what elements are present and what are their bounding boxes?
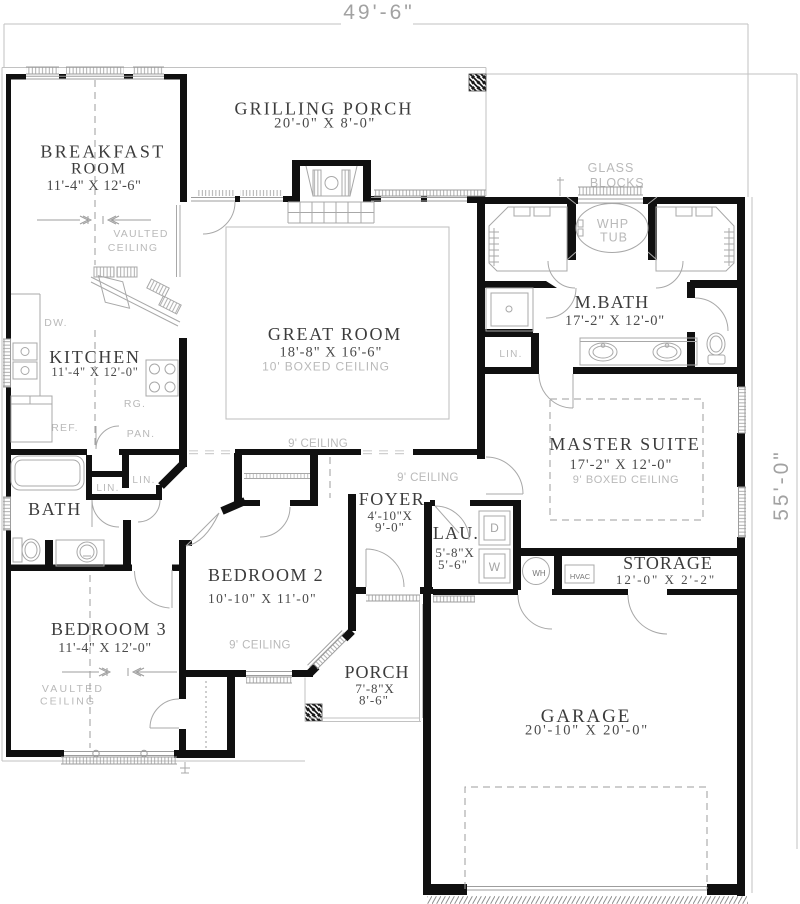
svg-text:49'-6": 49'-6" <box>343 1 415 24</box>
svg-text:TUB: TUB <box>600 231 628 245</box>
svg-text:LAU.: LAU. <box>433 523 479 543</box>
svg-text:55'-0": 55'-0" <box>770 449 793 521</box>
svg-text:9'-0": 9'-0" <box>375 520 405 535</box>
svg-text:ROOM: ROOM <box>71 161 127 178</box>
svg-text:GLASS: GLASS <box>588 161 635 175</box>
svg-text:LIN.: LIN. <box>96 483 119 494</box>
svg-text:10' BOXED CEILING: 10' BOXED CEILING <box>262 360 390 374</box>
svg-text:FOYER: FOYER <box>359 489 426 509</box>
svg-text:8'-6": 8'-6" <box>359 693 389 708</box>
svg-text:W: W <box>489 560 502 574</box>
svg-text:11'-4" X 12'-0": 11'-4" X 12'-0" <box>58 641 151 656</box>
svg-text:VAULTED: VAULTED <box>42 683 104 695</box>
svg-text:LIN.: LIN. <box>499 349 522 360</box>
svg-text:17'-2" X 12'-0": 17'-2" X 12'-0" <box>570 457 673 473</box>
svg-text:CEILING: CEILING <box>108 242 158 254</box>
svg-text:M.BATH: M.BATH <box>575 292 650 312</box>
svg-text:12'-0" X 2'-2": 12'-0" X 2'-2" <box>616 572 716 587</box>
svg-text:WH: WH <box>532 569 546 578</box>
svg-text:CEILING: CEILING <box>40 696 96 708</box>
svg-text:VAULTED: VAULTED <box>113 228 168 240</box>
svg-text:BEDROOM 2: BEDROOM 2 <box>208 565 324 585</box>
svg-text:20'-10" X 20'-0": 20'-10" X 20'-0" <box>525 723 649 739</box>
svg-text:9' CEILING: 9' CEILING <box>397 472 459 484</box>
svg-text:17'-2" X 12'-0": 17'-2" X 12'-0" <box>565 313 665 329</box>
svg-text:BATH: BATH <box>28 499 82 519</box>
svg-text:18'-8" X 16'-6": 18'-8" X 16'-6" <box>280 345 383 361</box>
svg-text:9' CEILING: 9' CEILING <box>288 438 348 450</box>
svg-text:GREAT ROOM: GREAT ROOM <box>268 324 402 344</box>
svg-text:9' BOXED CEILING: 9' BOXED CEILING <box>573 474 679 486</box>
svg-text:HVAC: HVAC <box>570 572 591 581</box>
svg-text:LIN.: LIN. <box>132 475 155 486</box>
svg-text:11'-4" X 12'-6": 11'-4" X 12'-6" <box>47 178 142 194</box>
svg-text:MASTER SUITE: MASTER SUITE <box>549 434 700 454</box>
svg-text:D: D <box>490 521 500 535</box>
svg-text:PAN.: PAN. <box>127 428 156 440</box>
svg-text:WHP: WHP <box>597 217 629 231</box>
svg-text:RG.: RG. <box>124 398 146 410</box>
svg-text:BEDROOM 3: BEDROOM 3 <box>51 619 167 639</box>
svg-text:20'-0" X 8'-0": 20'-0" X 8'-0" <box>274 116 376 132</box>
svg-text:BREAKFAST: BREAKFAST <box>40 142 165 162</box>
svg-text:DW.: DW. <box>44 317 67 329</box>
svg-text:PORCH: PORCH <box>344 662 409 682</box>
svg-text:5'-6": 5'-6" <box>438 557 468 572</box>
svg-text:REF.: REF. <box>51 422 79 434</box>
svg-text:STORAGE: STORAGE <box>623 553 713 573</box>
svg-text:9' CEILING: 9' CEILING <box>229 640 291 652</box>
svg-text:10'-10" X 11'-0": 10'-10" X 11'-0" <box>208 591 317 606</box>
